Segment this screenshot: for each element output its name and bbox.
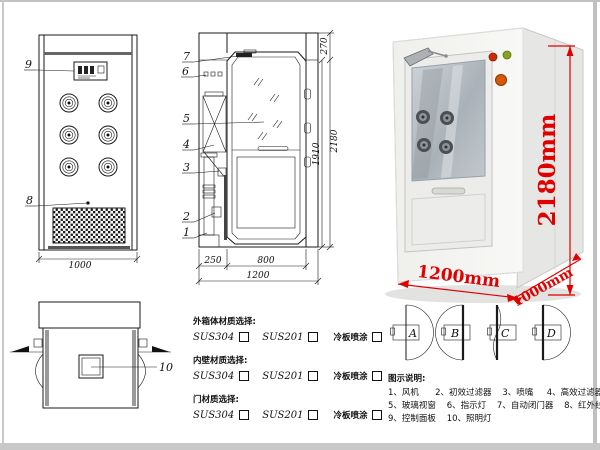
door-option-c-icon: C [488,305,517,360]
callout-5: 5 [183,112,190,125]
page-border-left [2,0,4,450]
nozzle-icons [60,94,117,176]
legend: 图示说明: 1、风机 2、初效过滤器 3、喷嘴 4、高效过滤器 5、玻璃视窗 6… [388,372,593,426]
green-indicator-light [503,51,511,59]
checkbox-icon [308,371,318,381]
callout-10: 10 [159,361,173,374]
checkbox-icon [308,332,318,342]
legend-title: 图示说明: [388,372,593,384]
callout-2: 2 [182,210,190,223]
material-option: SUS304 [193,410,234,421]
dim-270: 270 [320,37,330,55]
material-section-label: 门材质选择: [193,393,383,405]
fan-stack-icon [199,153,221,247]
nozzle-icon [99,158,117,176]
cabinet-door [405,51,492,252]
legend-line: 9、控制面板 10、照明灯 [388,413,593,426]
callout-3: 3 [183,161,190,174]
checkbox-icon [372,410,382,420]
checkbox-icon [239,371,249,381]
page-border-bottom [0,443,600,450]
side-dimensions-bottom: 250 800 1200 [196,249,321,285]
door-option-label: B [450,327,459,340]
legend-line: 5、玻璃视窗 6、指示灯 7、自动闭门器 8、红外线感应器 [388,400,593,413]
top-back-section [39,302,140,328]
glass-hatch-icon [248,78,282,140]
door-swing-left-icon [10,339,43,388]
red-indicator-light [489,53,497,61]
legend-line: 1、风机 2、初效过滤器 3、喷嘴 4、高效过滤器 [388,387,593,400]
side-door [227,50,311,244]
top-main-section [43,328,138,408]
callout-7: 7 [183,50,190,63]
bracket-icon [218,168,226,176]
nozzle-icon [99,126,117,144]
front-base-band [48,246,130,249]
material-option: SUS201 [262,410,303,421]
air-grille-icon [53,208,125,243]
checkbox-icon [308,410,318,420]
material-option: SUS304 [193,371,234,382]
page-border-top [0,0,600,2]
door-option-label: A [408,327,417,340]
side-callouts: 7 6 5 4 3 2 1 [181,50,264,239]
material-option-row: SUS304 SUS201 冷板喷涂 [193,331,383,343]
nozzle-icon [60,94,78,112]
material-option-row: SUS304 SUS201 冷板喷涂 [193,370,383,382]
lamp-icon [79,355,103,378]
material-option: 冷板喷涂 [333,370,367,382]
nozzle-icon [99,94,117,112]
side-machinery [199,72,227,247]
hinge-icon [305,123,311,133]
hinge-icon [305,89,311,99]
dim-1910: 1910 [312,142,322,165]
material-section-label: 外箱体材质选择: [193,315,383,327]
door-option-a-icon: A [391,305,434,360]
dim-250: 250 [203,256,221,266]
top-view-drawing: 10 [8,291,203,421]
front-callout-9: 9 [25,58,32,71]
dim-2180: 2180 [330,129,340,153]
page-border-right [593,0,597,450]
front-view-drawing: 9 8 1000 [18,26,178,271]
material-option-row: SUS304 SUS201 冷板喷涂 [193,409,383,421]
door-option-b-icon: B [436,305,470,360]
side-view-drawing: 7 6 5 4 3 2 1 250 800 1200 [170,23,345,293]
material-option: SUS304 [193,332,234,343]
nozzle-icon [60,126,78,144]
front-callout-8: 8 [26,194,33,207]
door-option-d-icon: D [533,305,571,360]
front-dim-1000: 1000 [69,261,92,271]
side-dimensions-right: 1910 270 2180 [312,30,340,250]
material-option: 冷板喷涂 [333,331,367,343]
material-option: 冷板喷涂 [333,409,367,421]
door-closer-icon [236,53,252,57]
door-configuration-options: A B C D [378,300,588,370]
dim-800: 800 [257,256,274,266]
material-option: SUS201 [262,332,303,343]
door-option-label: D [546,327,556,340]
callout-1: 1 [183,226,190,239]
dim-1200: 1200 [247,271,270,281]
photo-dim-2180: 2180mm [534,114,561,227]
hinge-icon [305,157,311,167]
orange-button [496,75,507,86]
callout-6: 6 [182,65,189,78]
material-section-label: 内壁材质选择: [193,354,383,366]
door-handle-icon [432,188,465,194]
nozzle-icon [60,158,78,176]
front-dimension: 1000 [36,252,140,271]
checkbox-icon [372,371,382,381]
front-top-band [44,52,132,55]
material-selection: 外箱体材质选择: SUS304 SUS201 冷板喷涂 内壁材质选择: SUS3… [193,315,383,432]
control-panel-icon [74,62,107,80]
callout-4: 4 [182,138,190,151]
checkbox-icon [239,410,249,420]
product-photo: 2180mm 1200mm 1000mm [383,18,593,320]
material-option: SUS201 [262,371,303,382]
checkbox-icon [239,332,249,342]
door-option-label: C [501,327,510,340]
